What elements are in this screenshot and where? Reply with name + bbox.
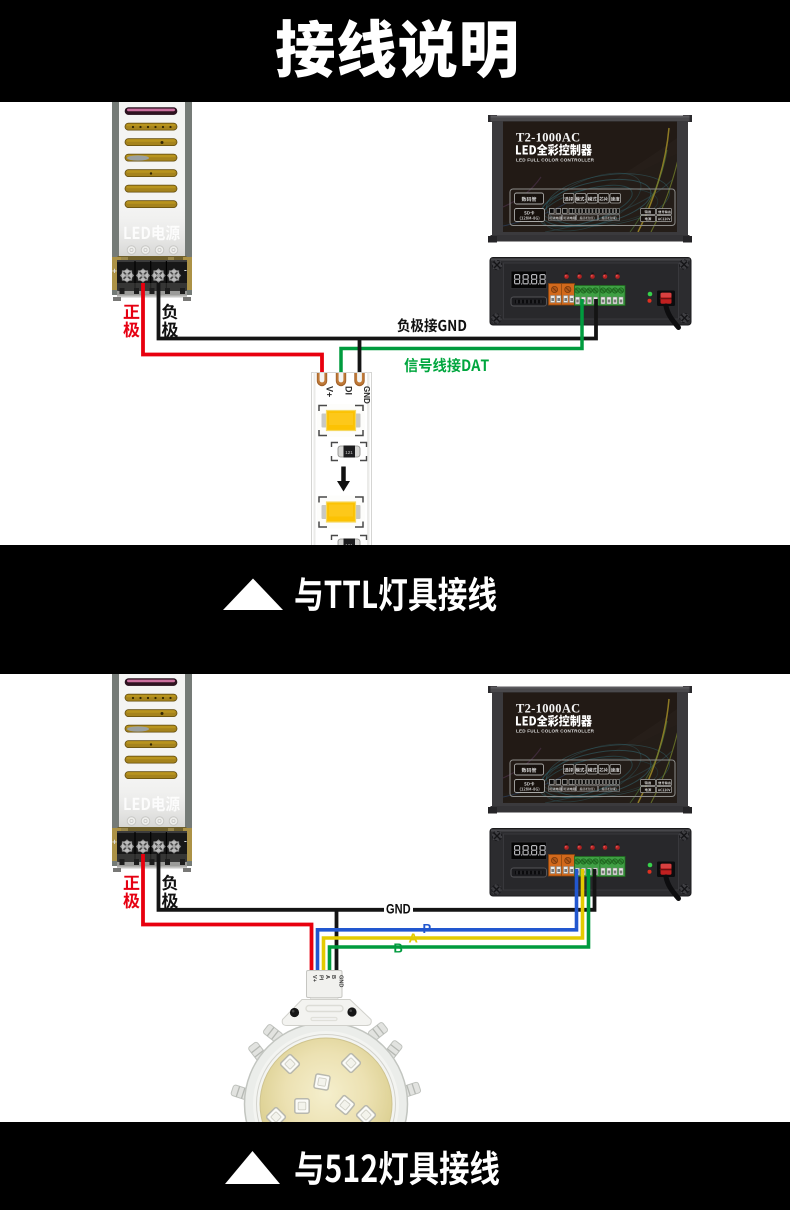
svg-text:GND: GND: [362, 386, 371, 404]
svg-text:121: 121: [345, 450, 353, 455]
svg-text:A: A: [324, 975, 330, 979]
svg-text:P: P: [423, 921, 432, 936]
svg-text:V+: V+: [311, 975, 317, 983]
svg-text:A: A: [409, 931, 419, 946]
svg-text:B: B: [394, 941, 403, 956]
svg-text:V+: V+: [325, 386, 335, 397]
svg-text:PI: PI: [318, 975, 324, 981]
svg-text:GND: GND: [337, 975, 343, 987]
svg-text:DI: DI: [344, 386, 354, 395]
svg-text:B: B: [330, 975, 336, 979]
svg-text:GND: GND: [386, 901, 411, 916]
